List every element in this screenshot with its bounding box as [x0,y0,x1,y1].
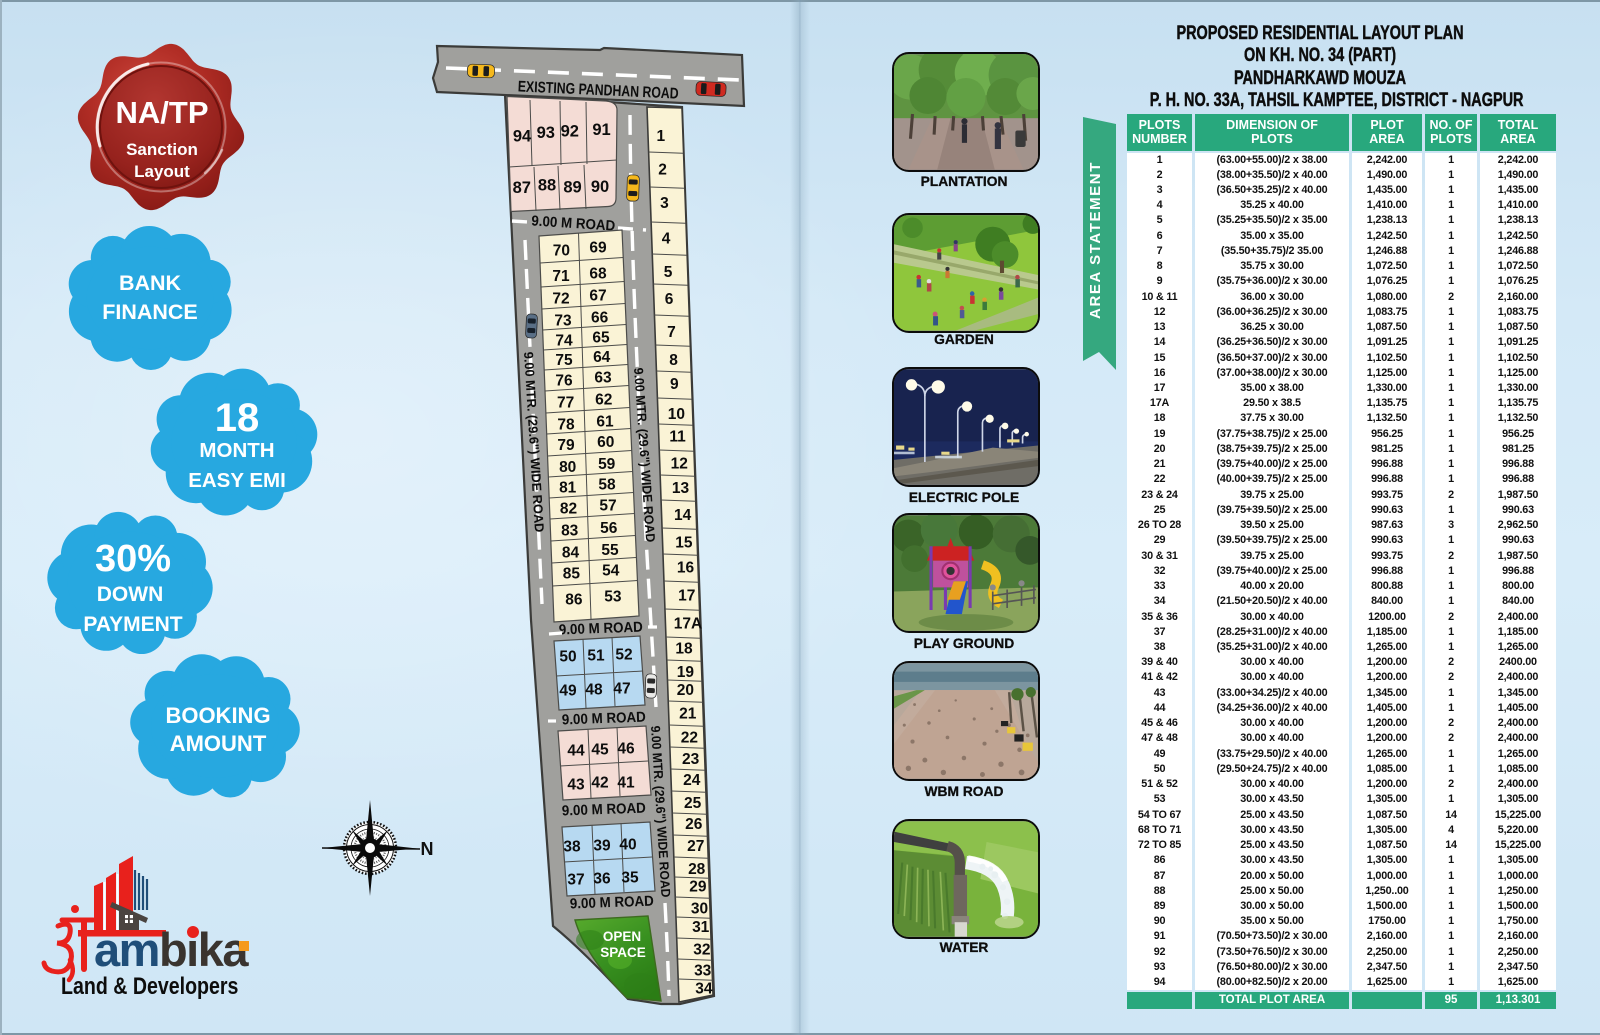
svg-text:33: 33 [694,963,712,980]
svg-text:71: 71 [552,268,570,285]
svg-text:79: 79 [557,437,575,454]
svg-text:30: 30 [691,900,708,917]
svg-text:27: 27 [687,838,704,855]
svg-text:35: 35 [621,870,639,887]
svg-text:72: 72 [552,291,569,308]
svg-text:11: 11 [669,429,686,446]
svg-text:9: 9 [670,376,679,393]
svg-text:OPEN: OPEN [603,929,641,944]
svg-text:45: 45 [591,742,609,759]
svg-text:17: 17 [678,588,695,605]
svg-text:51: 51 [587,648,605,665]
svg-text:81: 81 [559,480,577,497]
svg-text:21: 21 [679,706,697,723]
svg-text:86: 86 [565,592,583,609]
svg-text:30%: 30% [95,538,171,580]
svg-text:93: 93 [537,124,555,142]
svg-text:58: 58 [598,477,616,494]
svg-text:43: 43 [567,777,585,794]
svg-text:54: 54 [602,563,620,580]
svg-text:31: 31 [692,919,710,936]
svg-text:9.00 M ROAD: 9.00 M ROAD [562,801,647,820]
svg-text:ambika: ambika [94,923,249,976]
svg-text:40: 40 [619,837,636,854]
svg-text:41: 41 [617,775,635,792]
svg-text:65: 65 [592,330,610,347]
svg-text:Layout: Layout [134,162,190,181]
svg-text:68: 68 [589,266,607,283]
svg-text:52: 52 [615,647,632,664]
svg-text:24: 24 [683,772,701,789]
svg-text:78: 78 [557,417,575,434]
svg-text:48: 48 [585,682,603,699]
svg-text:84: 84 [562,545,580,562]
svg-text:32: 32 [693,941,710,958]
svg-text:22: 22 [681,730,698,747]
svg-text:AMOUNT: AMOUNT [170,731,267,756]
svg-text:7: 7 [667,324,676,341]
svg-text:14: 14 [674,507,692,524]
svg-text:59: 59 [598,456,616,473]
svg-text:9.00 M ROAD: 9.00 M ROAD [559,620,644,639]
svg-text:73: 73 [554,313,572,330]
svg-text:42: 42 [591,775,608,792]
svg-text:6: 6 [665,291,674,308]
svg-text:28: 28 [688,861,706,878]
svg-text:EASY EMI: EASY EMI [188,469,286,492]
svg-text:47: 47 [613,681,630,698]
svg-text:29: 29 [689,878,707,895]
svg-text:34: 34 [695,981,713,998]
svg-text:Land & Developers: Land & Developers [61,972,238,1000]
svg-text:39: 39 [593,838,611,855]
svg-text:83: 83 [561,523,579,540]
svg-text:64: 64 [593,349,611,366]
svg-text:18: 18 [215,396,260,440]
svg-text:SPACE: SPACE [600,945,646,960]
svg-text:85: 85 [563,566,581,583]
svg-text:BOOKING: BOOKING [165,703,270,728]
svg-text:50: 50 [559,649,576,666]
svg-text:60: 60 [597,434,614,451]
svg-text:NA/TP: NA/TP [116,95,209,130]
svg-text:55: 55 [601,542,619,559]
svg-text:12: 12 [671,456,688,473]
svg-text:2: 2 [658,162,667,179]
svg-text:Sanction: Sanction [126,140,198,159]
svg-text:90: 90 [591,178,609,196]
svg-text:89: 89 [563,178,581,196]
svg-text:77: 77 [557,395,574,412]
svg-text:BANK: BANK [119,271,182,295]
svg-text:37: 37 [567,872,584,889]
svg-text:57: 57 [599,498,616,515]
svg-text:94: 94 [513,128,532,146]
svg-text:9.00 M ROAD: 9.00 M ROAD [562,710,647,729]
svg-text:8: 8 [669,352,678,369]
svg-text:74: 74 [555,333,573,350]
svg-text:DOWN: DOWN [97,583,164,606]
svg-text:56: 56 [600,520,618,537]
svg-text:62: 62 [595,392,612,409]
svg-text:5: 5 [664,264,673,281]
svg-text:MONTH: MONTH [199,439,274,462]
svg-text:36: 36 [593,871,611,888]
svg-text:17A: 17A [674,616,702,633]
svg-text:18: 18 [675,641,693,658]
svg-text:23: 23 [682,751,700,768]
svg-text:92: 92 [561,123,579,141]
svg-text:AREA STATEMENT: AREA STATEMENT [1087,161,1104,319]
svg-text:16: 16 [677,560,695,577]
svg-text:75: 75 [555,352,573,369]
svg-text:25: 25 [684,795,702,812]
svg-text:63: 63 [594,370,612,387]
svg-text:26: 26 [685,816,703,833]
svg-text:69: 69 [589,240,607,257]
svg-text:9.00 M ROAD: 9.00 M ROAD [570,894,655,913]
svg-text:91: 91 [592,121,610,139]
svg-text:FINANCE: FINANCE [102,300,198,324]
svg-text:13: 13 [672,480,690,497]
svg-text:3: 3 [660,195,669,212]
svg-text:67: 67 [589,288,606,305]
svg-text:38: 38 [563,839,581,856]
svg-text:20: 20 [677,682,694,699]
svg-text:10: 10 [668,406,685,423]
svg-text:76: 76 [555,373,573,390]
svg-text:80: 80 [559,459,576,476]
svg-text:66: 66 [591,310,609,327]
svg-text:15: 15 [675,535,693,552]
svg-text:44: 44 [567,743,585,760]
svg-text:53: 53 [604,589,622,606]
svg-text:1: 1 [656,128,665,145]
svg-text:61: 61 [596,414,614,431]
svg-text:19: 19 [677,664,695,681]
svg-text:87: 87 [513,179,531,197]
svg-text:70: 70 [553,243,570,260]
svg-text:49: 49 [559,683,577,700]
svg-text:PAYMENT: PAYMENT [83,613,182,636]
svg-text:4: 4 [662,231,671,248]
svg-text:82: 82 [560,501,577,518]
svg-text:46: 46 [617,741,635,758]
svg-text:88: 88 [538,177,556,195]
